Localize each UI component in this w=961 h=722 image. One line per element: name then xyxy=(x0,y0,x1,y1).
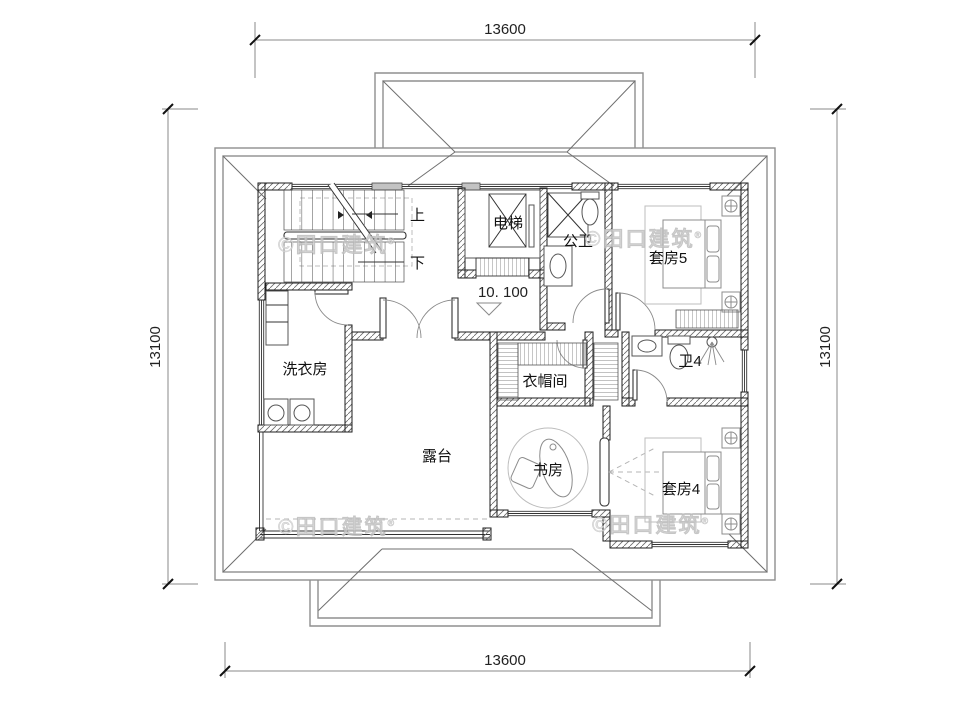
label-study: 书房 xyxy=(533,462,563,479)
elevation-triangle-icon xyxy=(477,303,501,315)
dimension-right: 13100 xyxy=(810,104,846,589)
watermark-text: ©田口建筑® xyxy=(585,227,703,251)
laundry-cabinet xyxy=(266,291,288,345)
window-left-laundry xyxy=(259,300,263,425)
terrace-double-door xyxy=(380,298,458,338)
pillow xyxy=(707,484,719,509)
watermark-text: ©田口建筑® xyxy=(592,513,710,537)
window-study-south xyxy=(508,511,592,515)
pillow xyxy=(707,256,719,282)
label-bath4: 卫4 xyxy=(678,353,701,370)
window-top-2 xyxy=(402,184,462,188)
elevation-value: 10. 100 xyxy=(478,284,528,301)
watermark-text: ©田口建筑® xyxy=(278,515,396,539)
laundry-door xyxy=(315,290,348,325)
window-right-bath4 xyxy=(742,350,746,392)
dim-left-value: 13100 xyxy=(147,326,164,368)
label-suite4: 套房4 xyxy=(662,481,700,498)
public-bath-door xyxy=(573,289,609,323)
toilet-tank xyxy=(581,192,599,199)
pillow xyxy=(707,456,719,481)
window-top-3 xyxy=(480,184,572,188)
label-terrace: 露台 xyxy=(422,448,452,465)
label-stairs-up: 上 xyxy=(410,207,425,224)
pillow xyxy=(707,226,719,252)
label-suite5: 套房5 xyxy=(649,250,687,267)
watermark-text: ©田口建筑® xyxy=(278,233,396,257)
dimension-left: 13100 xyxy=(147,104,198,589)
window-top-4 xyxy=(618,184,710,188)
suite5-door xyxy=(616,293,655,330)
window-suite4-south xyxy=(652,542,728,546)
label-elevator: 电梯 xyxy=(493,215,523,232)
elevator-door xyxy=(476,258,529,276)
floor-plan-canvas: 10. 100 上 下 电梯 公卫 套房5 洗衣房 衣帽间 卫4 露台 书房 套… xyxy=(0,0,961,722)
suite4-pivot-door xyxy=(600,438,662,506)
elevation-marker: 10. 100 xyxy=(477,284,528,315)
dimension-bottom: 13600 xyxy=(220,642,755,678)
dim-right-value: 13100 xyxy=(817,326,834,368)
label-laundry: 洗衣房 xyxy=(282,361,327,378)
floor-plan-svg: 10. 100 上 下 电梯 公卫 套房5 洗衣房 衣帽间 卫4 露台 书房 套… xyxy=(0,0,961,722)
bath4-door xyxy=(633,370,667,402)
label-stairs-down: 下 xyxy=(410,255,425,272)
dimension-top: 13600 xyxy=(250,21,760,78)
wardrobe-suite5 xyxy=(676,310,738,328)
closet-wardrobes xyxy=(498,343,618,400)
laundry-fixtures xyxy=(264,291,314,425)
toilet-icon xyxy=(582,199,598,225)
elevator-shaft xyxy=(465,190,540,276)
label-closet: 衣帽间 xyxy=(522,373,567,390)
staircase xyxy=(284,183,412,282)
dim-top-value: 13600 xyxy=(484,21,526,38)
toilet-tank xyxy=(668,336,690,344)
sink-basin-icon xyxy=(550,254,566,278)
dim-bottom-value: 13600 xyxy=(484,652,526,669)
